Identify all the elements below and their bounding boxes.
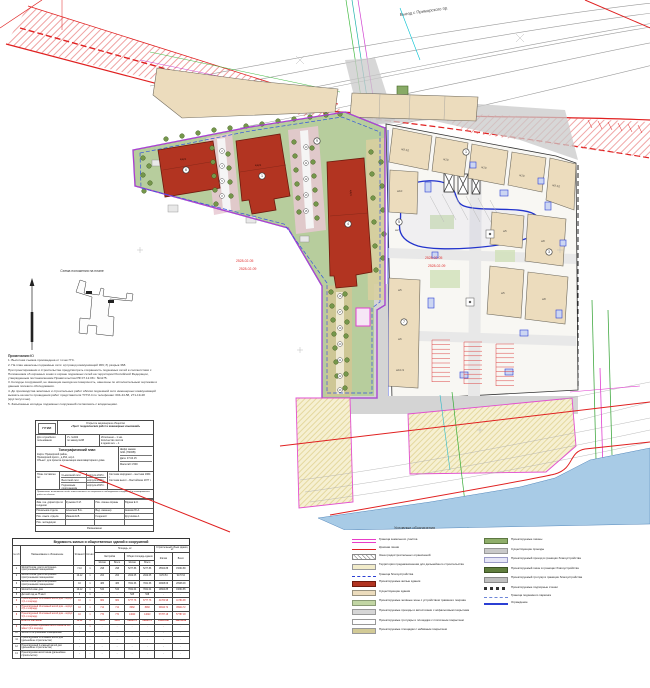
north-arrow-icon bbox=[30, 278, 35, 286]
tree-icon bbox=[212, 128, 217, 133]
note-line: 4. До производства земляных и строительн… bbox=[8, 390, 158, 402]
table-header: Всего bbox=[172, 553, 189, 566]
signature-cell: Нач. экспедиции bbox=[36, 520, 66, 525]
blue-mark bbox=[425, 182, 431, 192]
numbered-point: 15 bbox=[304, 209, 309, 214]
tree-icon bbox=[329, 290, 334, 295]
legend-item: Граница подземного паркинга bbox=[484, 594, 650, 598]
height-system: Система высот – Балтийская 1977 г. bbox=[109, 479, 152, 482]
legend-item: Проектируемые тротуары и площадки с плит… bbox=[352, 619, 488, 625]
table-cell: - bbox=[125, 651, 140, 658]
table-cell: 13 bbox=[13, 651, 21, 658]
table-cell: - bbox=[140, 624, 155, 631]
legend: Условные обозначения Граница земельного … bbox=[348, 526, 650, 533]
legend-swatch-white bbox=[352, 619, 376, 625]
table-cell: 264 bbox=[95, 573, 110, 580]
table-cell: 982 bbox=[110, 597, 125, 604]
legend-swatch-magenta2 bbox=[352, 539, 376, 543]
svg-text:ж10-9: ж10-9 bbox=[396, 368, 404, 372]
table-row: 1Жилой 9-этаж. дом со встроенно-пристрое… bbox=[13, 566, 190, 573]
legend-item: Проектируемый тротуар в границах благоус… bbox=[484, 576, 650, 582]
legend-label: Граница земельного участка bbox=[379, 538, 488, 541]
dsp-stamp: Для служебного пользования bbox=[36, 435, 66, 446]
table-cell: 2022.05 bbox=[125, 573, 140, 580]
tree-icon bbox=[212, 174, 217, 179]
legend-label: Проектируемый газон в границах благоустр… bbox=[511, 567, 650, 570]
table-cell: 15664.88 bbox=[172, 566, 189, 573]
svg-text:1: 1 bbox=[261, 174, 263, 178]
table-cell: - bbox=[155, 644, 172, 651]
svg-text:жд21: жд21 bbox=[349, 190, 353, 197]
tree-icon bbox=[211, 160, 216, 165]
tree-icon bbox=[213, 188, 218, 193]
table-title: Ведомость жилых и общественных зданий и … bbox=[12, 538, 190, 545]
legend-label: Проектируемый тротуар в границах благоус… bbox=[511, 576, 650, 579]
legend-swatch-paleyellow bbox=[352, 564, 376, 570]
table-cell: 298 bbox=[110, 566, 125, 573]
table-cell: 8082 bbox=[140, 605, 155, 612]
cipher-value: №91 (Н200В) bbox=[120, 451, 152, 454]
numbered-point: 17 bbox=[338, 310, 343, 315]
table-cell: 12 bbox=[13, 644, 21, 651]
table-cell: - bbox=[74, 644, 86, 651]
tree-icon bbox=[344, 334, 349, 339]
legend-label: Проектируемые жилые здания bbox=[379, 580, 488, 583]
legend-item: Проектируемые площадки с набивным покрыт… bbox=[352, 628, 488, 634]
location-scheme: Схема положения на плане Ю bbox=[30, 269, 133, 358]
signature-row: Начальник отделаАлексеев В.А.Вед. инжене… bbox=[36, 508, 153, 514]
legend-item: Проектируемый проезд в границах благоуст… bbox=[484, 557, 650, 563]
buildings-register: Ведомость жилых и общественных зданий и … bbox=[12, 538, 190, 659]
legend-item: Существующие проезды bbox=[484, 548, 650, 554]
legend-swatch-bluedashdot bbox=[484, 597, 508, 598]
notes-block: Примечания: 1. Высотная съемка произведе… bbox=[8, 354, 158, 408]
table-cell: 712 bbox=[95, 605, 110, 612]
composed-label: План составлен по: bbox=[36, 472, 60, 489]
table-cell: 10 bbox=[74, 580, 86, 587]
signature-cell bbox=[66, 520, 96, 525]
numbered-point: 22 bbox=[338, 374, 343, 379]
table-cell: 39944.72 bbox=[172, 605, 189, 612]
table-cell: - bbox=[110, 651, 125, 658]
legend-item: Существующие здания bbox=[352, 590, 488, 596]
tree-icon bbox=[229, 194, 234, 199]
signatures: Зам. ген. директора по геодезииКузьмин О… bbox=[36, 499, 153, 525]
svg-text:ж5: ж5 bbox=[398, 288, 402, 292]
svg-text:9: 9 bbox=[316, 139, 318, 143]
titleblock-composed-row: Подземным сооружениямкорпуса 2015 г. bbox=[61, 483, 106, 489]
tree-icon bbox=[371, 196, 376, 201]
table-cell: Проектируемая подземная автостоянка на 2… bbox=[21, 624, 74, 631]
legend-item: Граница земельного участка bbox=[352, 538, 488, 543]
table-cell: 1 bbox=[85, 580, 94, 587]
existing-building-annex bbox=[350, 93, 478, 121]
table-cell: - bbox=[140, 644, 155, 651]
table-cell: 1 bbox=[85, 612, 94, 619]
table-cell: - bbox=[155, 636, 172, 643]
table-cell: - bbox=[110, 644, 125, 651]
tree-icon bbox=[227, 166, 232, 171]
table-cell: - bbox=[95, 636, 110, 643]
legend-item: Проектируемые подпорные стенки bbox=[484, 586, 650, 591]
svg-text:2528-02-09: 2528-02-09 bbox=[239, 267, 256, 271]
tree-icon bbox=[333, 346, 338, 351]
svg-text:3: 3 bbox=[548, 250, 550, 254]
note-line: При проектировании и строительстве преду… bbox=[8, 369, 158, 381]
svg-text:жд21: жд21 bbox=[255, 163, 262, 167]
table-cell: 10-12 bbox=[74, 573, 86, 580]
svg-text:ж8: ж8 bbox=[541, 239, 545, 243]
legend-swatch-red bbox=[352, 581, 376, 587]
numbered-point: 12 bbox=[304, 177, 309, 182]
signature-cell: Юдина Е.З. bbox=[125, 500, 154, 508]
tree-icon bbox=[297, 210, 302, 215]
svg-text:2528-02-09: 2528-02-09 bbox=[428, 264, 445, 268]
tree-icon bbox=[228, 126, 233, 131]
table-cell: Жилой 9-этаж. дом со встроенно-пристроен… bbox=[21, 573, 74, 580]
tree-icon bbox=[226, 152, 231, 157]
table-cell: 1 bbox=[85, 566, 94, 573]
order-sub: по заказу №88 bbox=[67, 439, 98, 442]
table-cell: 2 bbox=[13, 573, 21, 580]
signature-cell: Нач. изыск. отдела bbox=[36, 514, 66, 519]
date-field: Дата: 07.04.15 bbox=[120, 455, 152, 460]
legend-label: Проектируемые тротуары и площадки с плит… bbox=[379, 619, 488, 622]
svg-text:7: 7 bbox=[403, 320, 405, 324]
legend-title: Условные обозначения bbox=[394, 526, 650, 530]
signature-cell: Геодезист bbox=[95, 514, 125, 519]
numbered-point: 2 bbox=[220, 149, 225, 154]
svg-text:ж2: ж2 bbox=[395, 228, 399, 232]
table-row: 9Проектируемая подземная автостоянка на … bbox=[13, 624, 190, 631]
table-cell: 8 bbox=[13, 612, 21, 619]
table-cell: - bbox=[74, 651, 86, 658]
table-row: 7Проектируемый 10-этажный жилой дом – ко… bbox=[13, 605, 190, 612]
blue-mark bbox=[470, 162, 476, 168]
legend-swatch-redline bbox=[352, 549, 376, 550]
legend-column-right: Проектируемые газоныСуществующие проезды… bbox=[484, 538, 650, 609]
signature-cell: Зам. ген. директора по геодезии bbox=[36, 500, 66, 508]
signature-cell: Нач. смены охраны bbox=[95, 500, 125, 508]
titleblock: ГРИИ Открытое акционерное общество «Трес… bbox=[35, 420, 154, 532]
legend-swatch-beige bbox=[352, 590, 376, 596]
table-cell: 20908.09 bbox=[155, 580, 172, 587]
table-cell: 712 bbox=[110, 605, 125, 612]
legend-swatch-bluedash bbox=[352, 576, 376, 577]
table-cell: Жилой 9-этаж. дом со встроенно-пристроен… bbox=[21, 566, 74, 573]
legend-item: Ограждение bbox=[484, 601, 650, 605]
tree-icon bbox=[180, 134, 185, 139]
signature-cell: Крутикова А. bbox=[125, 514, 154, 519]
table-cell: 9 bbox=[13, 624, 21, 631]
titleblock-note: Примечание: исполнитель несёт ответствен… bbox=[36, 490, 153, 498]
signature-cell bbox=[125, 520, 154, 525]
tree-icon bbox=[196, 131, 201, 136]
legend-swatch-blue2 bbox=[484, 603, 508, 605]
table-cell: 486 bbox=[110, 580, 125, 587]
tree-icon bbox=[379, 160, 384, 165]
legend-column-left: Граница земельного участкаКрасная линияЗ… bbox=[352, 538, 488, 638]
tree-icon bbox=[373, 244, 378, 249]
table-cell: - bbox=[172, 651, 189, 658]
legend-item: Зона градостроительных ограничений bbox=[352, 554, 488, 560]
svg-text:2528-02-05: 2528-02-05 bbox=[236, 259, 253, 263]
legend-swatch-gray3 bbox=[484, 577, 508, 583]
table-row: 3Жилой 9-этаж. дом со встроенно-пристрое… bbox=[13, 580, 190, 587]
svg-text:ж8: ж8 bbox=[542, 297, 546, 301]
svg-text:2528-02-05: 2528-02-05 bbox=[425, 256, 442, 260]
table-cell: 9170.54 bbox=[155, 573, 172, 580]
table-cell: Проектируемый 10-этажный жилой дом – кор… bbox=[21, 605, 74, 612]
legend-label: Проектируемый проезд в границах благоуст… bbox=[511, 557, 650, 560]
blue-mark bbox=[556, 310, 562, 318]
tree-icon bbox=[147, 164, 152, 169]
svg-text:5: 5 bbox=[398, 220, 400, 224]
tree-icon bbox=[310, 146, 315, 151]
svg-text:ж10: ж10 bbox=[397, 189, 403, 193]
table-row: 2Жилой 9-этаж. дом со встроенно-пристрое… bbox=[13, 573, 190, 580]
tree-icon bbox=[344, 372, 349, 377]
tree-icon bbox=[332, 332, 337, 337]
table-cell: - bbox=[155, 624, 172, 631]
doc-type: Топографический план bbox=[37, 448, 117, 452]
svg-text:ж6: ж6 bbox=[398, 337, 402, 341]
numbered-point: 3 bbox=[220, 164, 225, 169]
legend-label: Граница подземного паркинга bbox=[511, 594, 650, 597]
table-cell: - bbox=[95, 624, 110, 631]
street-label: Выезд с Приморского пр. bbox=[399, 5, 448, 17]
table-header: Общая площадь здания bbox=[125, 553, 155, 561]
table-cell: - bbox=[172, 624, 189, 631]
table-cell: 7-10 bbox=[74, 566, 86, 573]
tree-icon bbox=[330, 304, 335, 309]
svg-text:6: 6 bbox=[185, 168, 187, 172]
site-plan-sheet: Выезд с Приморского пр. bbox=[0, 0, 650, 688]
numbered-point: 8 bbox=[220, 194, 225, 199]
table-header: Наименование и обозначение bbox=[21, 546, 74, 566]
table-cell: - bbox=[125, 644, 140, 651]
table-cell: 7 bbox=[13, 605, 21, 612]
table-cell: - bbox=[125, 636, 140, 643]
org-logo: ГРИИ bbox=[36, 421, 58, 434]
numbered-point: 13 bbox=[304, 193, 309, 198]
table-cell: - bbox=[74, 636, 86, 643]
tree-icon bbox=[311, 160, 316, 165]
numbered-point: 10 bbox=[304, 145, 309, 150]
legend-swatch-hatch bbox=[352, 554, 376, 560]
legend-label: Существующие проезды bbox=[511, 548, 650, 551]
svg-text:Схема положения на плане: Схема положения на плане bbox=[60, 269, 104, 273]
numbered-point: 5 bbox=[220, 179, 225, 184]
table-cell: 10 bbox=[74, 612, 86, 619]
table-cell: Жилой 9-этаж. дом со встроенно-пристроен… bbox=[21, 580, 74, 587]
table-header: Жилая bbox=[155, 553, 172, 566]
table-cell: 1 bbox=[85, 605, 94, 612]
legend-label: Проектируемые подпорные стенки bbox=[511, 586, 650, 589]
table-header: Строительный объем здания, м³ bbox=[155, 546, 190, 553]
table-cell: 7841.66 bbox=[125, 580, 140, 587]
table-cell: 6 bbox=[13, 597, 21, 604]
blue-mark bbox=[538, 178, 544, 184]
tree-icon bbox=[312, 174, 317, 179]
legend-swatch-lav bbox=[484, 557, 508, 563]
legend-item: Красная линия bbox=[352, 546, 488, 550]
table-cell: - bbox=[125, 624, 140, 631]
signature-row: Зам. ген. директора по геодезииКузьмин О… bbox=[36, 499, 153, 508]
numbered-point: 11 bbox=[304, 161, 309, 166]
signature-cell: Акимов Ю.А. bbox=[125, 509, 154, 514]
table-cell: 486 bbox=[95, 580, 110, 587]
table-header: Площадь, м² bbox=[95, 546, 155, 553]
table-cell: 6777.76 bbox=[125, 597, 140, 604]
table-row: 6Проектируемый 10-этажный жилой дом – ко… bbox=[13, 597, 190, 604]
legend-swatch-dashsq bbox=[484, 587, 508, 590]
table-row: 11Проектируемый 25-этажный жилой дом (да… bbox=[13, 636, 190, 643]
signature-cell: Кузьмин О.И. bbox=[66, 500, 96, 508]
signature-cell: Вед. инженер bbox=[95, 509, 125, 514]
table-cell: Проектируемый 25-этажный жилой дом (даль… bbox=[21, 636, 74, 643]
table-cell: - bbox=[110, 624, 125, 631]
tree-icon bbox=[293, 154, 298, 159]
table-cell: 1 bbox=[13, 566, 21, 573]
table-cell: 5277.86 bbox=[140, 566, 155, 573]
table-cell: 10 bbox=[74, 597, 86, 604]
table-header: № п/п bbox=[13, 546, 21, 566]
blue-mark bbox=[500, 190, 508, 196]
note-line: 3. Колодцы сооружений, не имеющие выхода… bbox=[8, 381, 158, 389]
signature-row: Нач. экспедиции bbox=[36, 519, 153, 525]
tree-icon bbox=[314, 202, 319, 207]
legend-item: Граница благоустройства bbox=[352, 573, 488, 577]
table-cell: Проектируемый 10-этажный жилой дом – кор… bbox=[21, 597, 74, 604]
tree-icon bbox=[345, 320, 350, 325]
signature-row: Нач. изыск. отделаИванов Е.В.ГеодезистКр… bbox=[36, 513, 153, 519]
tree-icon bbox=[296, 196, 301, 201]
legend-item: Проектируемые проезды и автостоянки с ас… bbox=[352, 609, 488, 615]
table-row: 8Проектируемый 10-этажный жилой дом – ко… bbox=[13, 612, 190, 619]
tree-icon bbox=[148, 181, 153, 186]
legend-label: Зона градостроительных ограничений bbox=[379, 554, 488, 557]
legend-swatch-tan bbox=[352, 628, 376, 634]
blue-mark bbox=[545, 202, 551, 210]
table-cell: 7841.66 bbox=[140, 580, 155, 587]
table-cell: Проектируемый 10-этажный жилой дом – кор… bbox=[21, 612, 74, 619]
table-cell: 41784.98 bbox=[155, 597, 172, 604]
blue-mark bbox=[560, 240, 566, 246]
table-cell: - bbox=[172, 636, 189, 643]
table-cell: 770 bbox=[95, 612, 110, 619]
table-cell: - bbox=[85, 651, 94, 658]
table-row: 12Проектируемый 2-этажный жилой дом (дал… bbox=[13, 644, 190, 651]
table-cell: - bbox=[140, 636, 155, 643]
table-cell: 1 bbox=[85, 573, 94, 580]
tree-icon bbox=[343, 292, 348, 297]
numbered-point: 19 bbox=[338, 326, 343, 331]
table-cell: 5277.86 bbox=[125, 566, 140, 573]
table-cell: 14623 bbox=[140, 612, 155, 619]
tree-icon bbox=[141, 173, 146, 178]
table-cell: 39944.72 bbox=[155, 605, 172, 612]
legend-swatch-gray bbox=[352, 609, 376, 615]
table-cell: 14623 bbox=[125, 612, 140, 619]
table-cell: Проектируемый 2-этажный жилой дом (дальн… bbox=[21, 644, 74, 651]
tree-icon bbox=[292, 140, 297, 145]
table-cell: 982 bbox=[95, 597, 110, 604]
table-row: 13Проектируемая автостоянка (дальнейшее … bbox=[13, 651, 190, 658]
table-cell: - bbox=[95, 651, 110, 658]
legend-label: Ограждение bbox=[511, 601, 650, 604]
legend-item: Проектируемые жилые здания bbox=[352, 580, 488, 586]
table-header: Кол-во bbox=[85, 546, 94, 566]
table-header: Застройки bbox=[95, 553, 125, 561]
org-name: «Трест геодезических работ и инженерных … bbox=[59, 425, 152, 428]
tree-icon bbox=[295, 182, 300, 187]
table-cell: 15664.88 bbox=[155, 566, 172, 573]
legend-label: Красная линия bbox=[379, 546, 488, 549]
signature-cell: Начальник отдела bbox=[36, 509, 66, 514]
tree-icon bbox=[345, 358, 350, 363]
table-cell: 41784.98 bbox=[172, 597, 189, 604]
numbered-point: 20 bbox=[338, 342, 343, 347]
blue-mark bbox=[505, 369, 513, 375]
signature-cell bbox=[95, 520, 125, 525]
legend-swatch-green bbox=[484, 538, 508, 544]
signature-cell: Алексеев В.А. bbox=[66, 509, 96, 514]
legend-item: Проектируемые зелёные зоны с устройством… bbox=[352, 599, 488, 605]
legend-item: Территория предназначенная для дальнейше… bbox=[352, 563, 488, 569]
legend-label: Проектируемые газоны bbox=[511, 538, 650, 541]
tree-icon bbox=[214, 202, 219, 207]
table-cell: 57787.18 bbox=[172, 612, 189, 619]
tree-icon bbox=[374, 268, 379, 273]
table-cell: 770 bbox=[110, 612, 125, 619]
titleblock-footer: Размножено bbox=[36, 525, 153, 531]
tree-icon bbox=[372, 220, 377, 225]
object-line: Объект: для проекта организации многоква… bbox=[37, 459, 117, 462]
table-cell: 20908.09 bbox=[172, 580, 189, 587]
table-header: Этажность bbox=[74, 546, 86, 566]
tree-icon bbox=[369, 150, 374, 155]
svg-text:ж5: ж5 bbox=[501, 291, 505, 295]
numbered-point: 21 bbox=[338, 358, 343, 363]
table-cell: - bbox=[172, 644, 189, 651]
tree-icon bbox=[380, 184, 385, 189]
table-cell: - bbox=[140, 651, 155, 658]
table-cell: - bbox=[74, 624, 86, 631]
tree-icon bbox=[343, 386, 348, 391]
table-cell: 9170.54 bbox=[172, 573, 189, 580]
table-cell: 3 bbox=[13, 580, 21, 587]
blue-mark bbox=[520, 330, 528, 336]
tree-icon bbox=[294, 168, 299, 173]
table-cell: 1 bbox=[85, 624, 94, 631]
legend-label: Существующие здания bbox=[379, 590, 488, 593]
table-cell: - bbox=[85, 644, 94, 651]
svg-text:1: 1 bbox=[465, 150, 467, 154]
table-cell: 57787.18 bbox=[155, 612, 172, 619]
blue-mark bbox=[428, 298, 434, 308]
table-cell: Проектируемая автостоянка (дальнейшее ст… bbox=[21, 651, 74, 658]
legend-swatch-lgreen bbox=[352, 600, 376, 606]
table-cell: 298 bbox=[95, 566, 110, 573]
tree-icon bbox=[370, 172, 375, 177]
buildings-table: № п/пНаименование и обозначениеЭтажность… bbox=[12, 545, 190, 659]
tree-icon bbox=[141, 156, 146, 161]
legend-label: Проектируемые зелёные зоны с устройством… bbox=[379, 599, 488, 602]
scale-field: Масштаб 1:500 bbox=[120, 461, 152, 466]
table-cell: - bbox=[155, 651, 172, 658]
composed-rows: Съемочной сетикорпуса 2015 г.Высотной се… bbox=[60, 472, 108, 489]
